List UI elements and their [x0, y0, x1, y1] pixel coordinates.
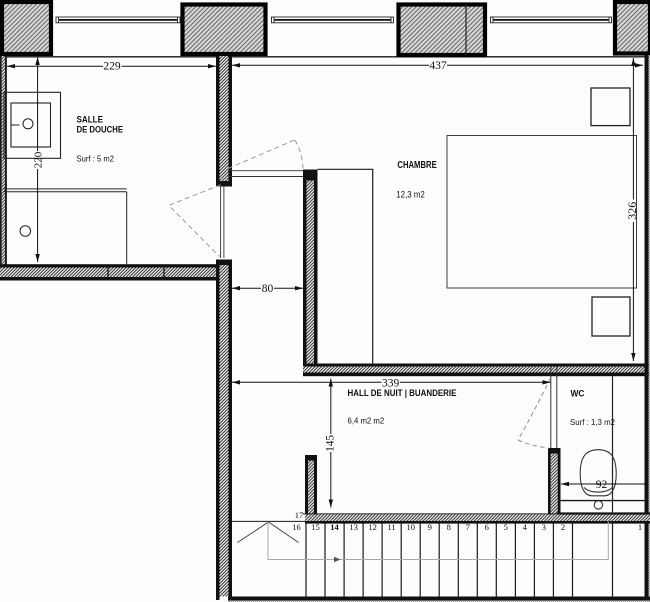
- svg-text:6,4 m2 m2: 6,4 m2 m2: [348, 415, 385, 425]
- svg-text:CHAMBRE: CHAMBRE: [397, 160, 437, 171]
- svg-text:Surf : 5 m2: Surf : 5 m2: [77, 153, 115, 163]
- svg-text:10: 10: [406, 522, 415, 532]
- svg-text:16: 16: [292, 522, 301, 532]
- svg-text:11: 11: [388, 522, 396, 532]
- svg-text:15: 15: [311, 522, 320, 532]
- svg-text:DE DOUCHE: DE DOUCHE: [77, 125, 124, 135]
- svg-text:1: 1: [638, 522, 642, 532]
- svg-text:12,3 m2: 12,3 m2: [396, 189, 425, 200]
- svg-text:7: 7: [466, 522, 470, 532]
- svg-text:17: 17: [295, 510, 304, 520]
- svg-text:Surf : 1,3 m2: Surf : 1,3 m2: [570, 417, 615, 427]
- svg-text:92: 92: [596, 479, 608, 491]
- svg-text:229: 229: [103, 61, 121, 73]
- svg-text:3: 3: [542, 522, 546, 532]
- svg-text:80: 80: [262, 283, 274, 295]
- svg-text:14: 14: [330, 522, 339, 532]
- svg-text:WC: WC: [571, 389, 585, 399]
- svg-text:145: 145: [324, 435, 336, 452]
- svg-text:326: 326: [625, 202, 639, 220]
- svg-text:12: 12: [368, 522, 377, 532]
- svg-text:2: 2: [561, 522, 565, 532]
- svg-text:SALLE: SALLE: [77, 115, 104, 125]
- svg-text:6: 6: [485, 522, 489, 532]
- svg-text:437: 437: [429, 60, 447, 72]
- svg-text:9: 9: [428, 522, 432, 532]
- svg-text:HALL DE NUIT | BUANDERIE: HALL DE NUIT | BUANDERIE: [348, 388, 457, 398]
- svg-text:220: 220: [32, 151, 44, 168]
- svg-text:4: 4: [523, 522, 528, 532]
- svg-text:13: 13: [349, 522, 358, 532]
- svg-text:8: 8: [447, 522, 451, 532]
- svg-text:5: 5: [504, 522, 508, 532]
